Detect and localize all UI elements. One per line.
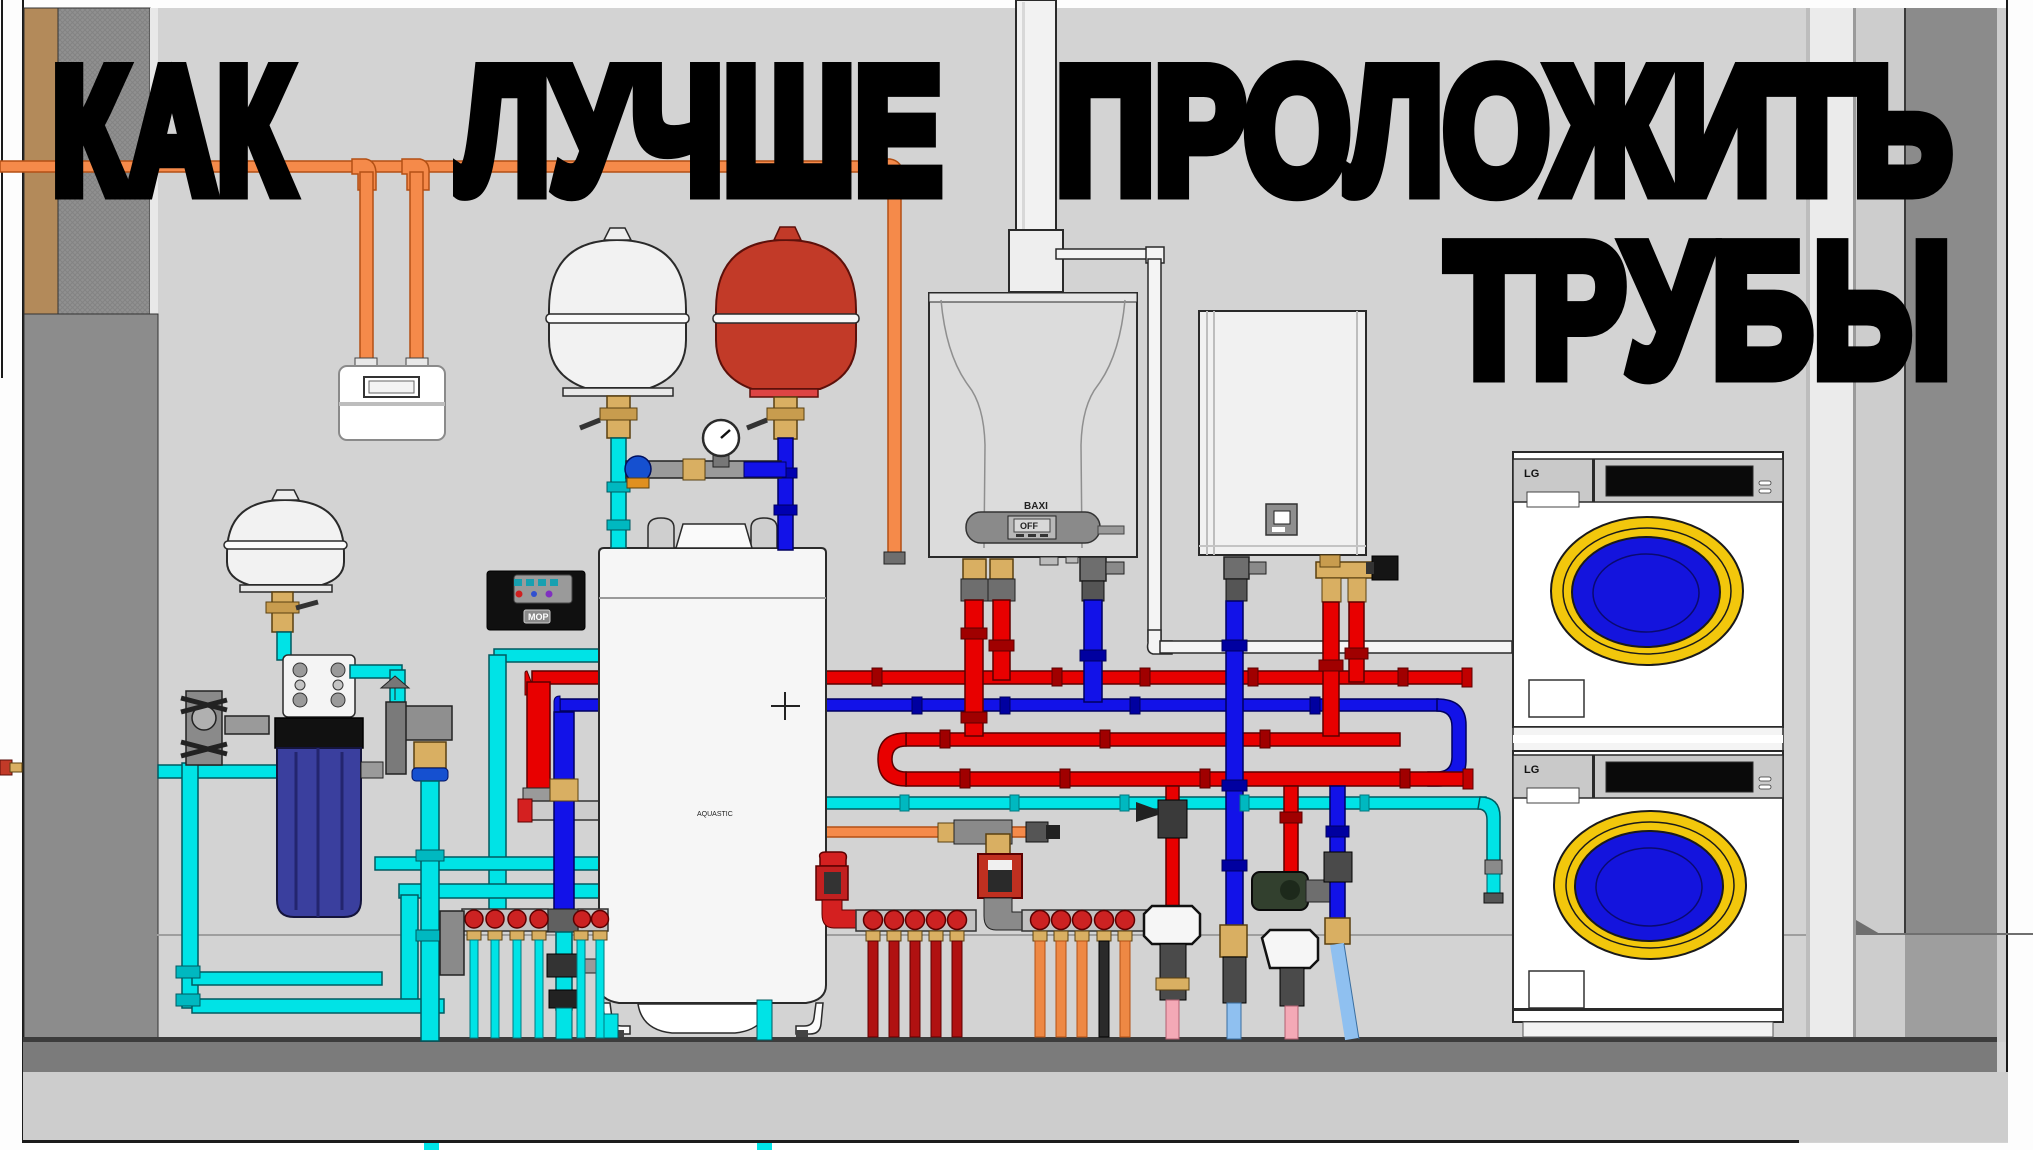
svg-text:ТРУБЫ: ТРУБЫ (1446, 205, 1951, 415)
svg-text:BAXI: BAXI (1024, 501, 1048, 512)
svg-text:LG: LG (1524, 468, 1539, 480)
svg-text:AQUASTIC: AQUASTIC (697, 811, 733, 818)
svg-text:LG: LG (1524, 764, 1539, 776)
svg-text:МОР: МОР (528, 612, 549, 622)
svg-text:OFF: OFF (1020, 521, 1038, 531)
svg-text:КАК: КАК (52, 31, 292, 230)
svg-text:ЛУЧШЕ: ЛУЧШЕ (458, 31, 942, 230)
svg-text:ПРОЛОЖИТЬ: ПРОЛОЖИТЬ (1056, 31, 1952, 230)
